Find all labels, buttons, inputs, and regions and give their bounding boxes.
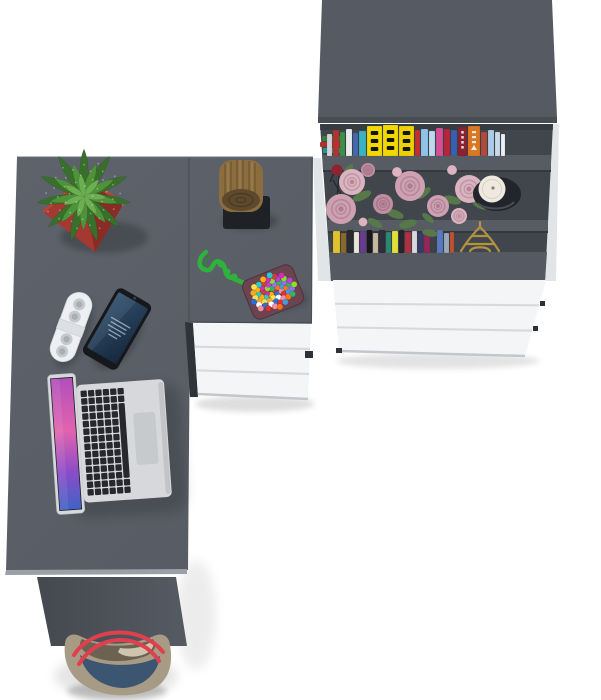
cactus-speckle	[55, 177, 57, 179]
cactus-speckle	[71, 220, 73, 222]
laptop-key	[96, 397, 103, 404]
rose-bud	[359, 218, 368, 227]
book-spine	[421, 129, 428, 156]
laptop-key	[83, 421, 90, 428]
cactus-speckle	[90, 170, 92, 172]
desk-corner-edge	[190, 322, 312, 323]
laptop-key	[108, 472, 115, 479]
laptop-key	[87, 489, 94, 496]
laptop	[47, 366, 188, 521]
laptop-key	[115, 457, 122, 464]
drawer-side-clip	[336, 348, 342, 353]
cactus-speckle	[69, 193, 71, 195]
laptop-key	[86, 466, 93, 473]
cactus-speckle	[82, 218, 84, 220]
cactus-speckle	[90, 213, 92, 215]
laptop-key	[97, 412, 104, 419]
book-spine	[379, 230, 385, 253]
book-title-mark	[472, 131, 476, 133]
laptop-key	[105, 427, 112, 434]
laptop-key	[96, 404, 103, 411]
laptop-key	[81, 406, 88, 413]
cactus-speckle	[89, 224, 91, 226]
cactus-speckle	[119, 193, 121, 195]
shelf-board-top	[322, 155, 551, 171]
book-spine	[501, 134, 505, 156]
rose-center	[338, 206, 343, 211]
laptop-key	[112, 411, 119, 418]
book-spine	[444, 129, 450, 156]
book-spine	[346, 129, 352, 156]
cactus-speckle	[122, 204, 124, 206]
book-title-mark	[387, 146, 395, 150]
book-title-mark	[461, 136, 464, 139]
book-title-mark	[371, 147, 379, 151]
book-title-mark	[472, 141, 476, 143]
laptop-key	[90, 420, 97, 427]
cactus-speckle	[65, 202, 67, 204]
rope-knot	[231, 274, 238, 281]
laptop-key	[113, 426, 120, 433]
cactus-speckle	[101, 201, 103, 203]
laptop-key	[102, 488, 109, 495]
book-spine	[333, 130, 339, 156]
cactus-speckle	[57, 196, 59, 198]
cactus-speckle	[92, 195, 94, 197]
laptop-key	[89, 405, 96, 412]
book-title-mark	[403, 139, 411, 143]
cactus-speckle	[80, 174, 82, 176]
laptop-key	[110, 396, 117, 403]
book-spine	[444, 233, 449, 253]
candle-wick	[491, 186, 494, 189]
laptop-key	[91, 435, 98, 442]
laptop-key	[80, 390, 87, 397]
bookcase-base-band	[329, 252, 547, 281]
laptop-key	[89, 413, 96, 420]
laptop-key	[109, 480, 116, 487]
log-cut-face	[222, 189, 260, 211]
laptop-key	[87, 481, 94, 488]
laptop-key	[99, 442, 106, 449]
book-title-mark	[472, 136, 476, 138]
laptop-key	[94, 481, 101, 488]
laptop-key	[82, 413, 89, 420]
cactus-speckle	[108, 219, 110, 221]
book-title-mark	[387, 130, 395, 134]
cactus-speckle	[113, 208, 115, 210]
cactus-speckle	[99, 227, 101, 229]
book-title-mark	[461, 146, 464, 149]
book-spine	[347, 230, 353, 253]
rose-center	[458, 215, 461, 218]
laptop-key	[93, 466, 100, 473]
laptop-key	[112, 419, 119, 426]
laptop-key	[103, 389, 110, 396]
book-spine	[333, 231, 340, 253]
rose-center	[407, 183, 412, 188]
book-spine	[415, 130, 420, 156]
cactus-speckle	[83, 164, 85, 166]
cactus-speckle	[75, 182, 77, 184]
laptop-key	[85, 459, 92, 466]
book-spine	[437, 230, 443, 253]
laptop-key	[104, 404, 111, 411]
laptop-key	[81, 398, 88, 405]
laptop-trackpad	[133, 412, 159, 465]
laptop-key	[95, 389, 102, 396]
underdesk-drawer-unit	[185, 322, 313, 399]
laptop-key	[98, 435, 105, 442]
bookcase	[313, 0, 559, 356]
book-spine	[495, 132, 500, 156]
book-spine	[360, 231, 366, 253]
drawer-side-clip	[540, 301, 545, 306]
laptop-key	[93, 458, 100, 465]
cactus-speckle	[114, 175, 116, 177]
book-spine	[367, 230, 372, 253]
book-title-mark	[371, 131, 379, 135]
book-spine	[359, 131, 366, 156]
laptop-key	[104, 412, 111, 419]
cactus-speckle	[102, 171, 104, 173]
book-spine	[392, 231, 398, 253]
cactus-speckle	[50, 202, 52, 204]
book-spine	[418, 233, 423, 253]
laptop-key	[118, 395, 125, 402]
cactus-speckle	[58, 218, 60, 220]
cactus-speckle	[65, 177, 67, 179]
cactus-speckle	[98, 218, 100, 220]
laptop-key	[109, 487, 116, 494]
laptop-key	[105, 419, 112, 426]
laptop-key	[97, 420, 104, 427]
book-spine	[481, 132, 487, 156]
laptop-key	[100, 465, 107, 472]
book-spine	[488, 130, 494, 156]
cactus-speckle	[84, 185, 86, 187]
book-spine	[340, 132, 345, 156]
cactus-speckle	[91, 204, 93, 206]
book-spine	[451, 130, 457, 156]
laptop-key	[100, 458, 107, 465]
cactus-speckle	[97, 163, 99, 165]
rose-bud	[447, 165, 457, 175]
laptop-key	[92, 451, 99, 458]
rose-center	[436, 204, 440, 208]
laptop-key	[101, 473, 108, 480]
desk-seam	[312, 158, 313, 322]
drawer-side-clip	[305, 351, 313, 358]
cactus-speckle	[45, 192, 47, 194]
cactus-speckle	[79, 209, 81, 211]
laptop-key	[86, 474, 93, 481]
book-spine	[450, 232, 454, 253]
book-title-mark	[461, 131, 464, 134]
cactus-speckle	[106, 191, 108, 193]
rose-center	[466, 186, 471, 191]
rose-bud	[392, 167, 402, 177]
book-spine	[405, 232, 411, 253]
book-title-mark	[371, 139, 379, 143]
drawer-side-clip	[533, 326, 538, 331]
book-title-mark	[461, 141, 464, 144]
drawer-front	[193, 323, 311, 399]
laptop-key	[108, 465, 115, 472]
bookcase-top-panel	[318, 0, 557, 117]
laptop-key	[83, 428, 90, 435]
laptop-key	[117, 388, 124, 395]
book-spine	[399, 230, 404, 253]
laptop-key	[90, 428, 97, 435]
laptop-key	[107, 449, 114, 456]
rope-knot	[224, 269, 231, 276]
cactus-speckle	[112, 198, 114, 200]
rose-center	[367, 169, 370, 172]
cactus-speckle	[64, 186, 66, 188]
laptop-key	[106, 434, 113, 441]
cactus-speckle	[62, 167, 64, 169]
book-spine	[353, 133, 358, 156]
laptop-key	[106, 442, 113, 449]
cactus-speckle	[76, 227, 78, 229]
book-title-mark	[387, 138, 395, 142]
rope-knot	[218, 261, 225, 268]
cactus-speckle	[75, 201, 77, 203]
laptop-key	[114, 449, 121, 456]
laptop-key	[124, 479, 131, 486]
book-spine	[436, 128, 443, 156]
rose-center	[381, 202, 385, 206]
laptop-key	[117, 487, 124, 494]
book-title-mark	[403, 131, 411, 135]
book-spine	[412, 231, 417, 253]
laptop-key	[84, 443, 91, 450]
bookcase-drawer-unit	[333, 280, 546, 356]
book-title-mark	[403, 147, 411, 151]
laptop-key	[92, 443, 99, 450]
cactus-speckle	[103, 209, 105, 211]
book-spine	[386, 232, 391, 253]
bookcase-top-panel-edge	[318, 117, 557, 123]
cactus-speckle	[72, 169, 74, 171]
laptop-key	[84, 436, 91, 443]
cactus-speckle	[59, 209, 61, 211]
laptop-key	[124, 486, 131, 493]
book-spine	[429, 131, 435, 156]
red-rose	[332, 165, 343, 176]
desk-front-edge	[5, 569, 187, 575]
laptop-key	[88, 390, 95, 397]
cactus-speckle	[97, 188, 99, 190]
laptop-key	[98, 427, 105, 434]
book-spine	[341, 233, 346, 253]
cactus-speckle	[102, 179, 104, 181]
laptop-key	[111, 403, 118, 410]
laptop-key	[102, 480, 109, 487]
rose-center	[350, 180, 355, 185]
laptop-key	[94, 473, 101, 480]
product-render	[0, 0, 601, 700]
laptop-key	[95, 488, 102, 495]
laptop-key	[88, 397, 95, 404]
cactus-speckle	[69, 212, 71, 214]
scene-svg	[0, 0, 601, 700]
laptop-key	[116, 479, 123, 486]
cactus-speckle	[53, 187, 55, 189]
laptop-key	[103, 396, 110, 403]
cactus-speckle	[47, 211, 49, 213]
drawer-front	[333, 280, 546, 356]
laptop-key	[114, 441, 121, 448]
laptop-key	[116, 472, 123, 479]
laptop-key	[110, 388, 117, 395]
laptop-key	[99, 450, 106, 457]
cactus-speckle	[92, 179, 94, 181]
book-spine	[354, 232, 359, 253]
laptop-key	[85, 451, 92, 458]
laptop-key	[107, 457, 114, 464]
laptop-key	[113, 434, 120, 441]
cactus-speckle	[112, 184, 114, 186]
book-spine	[327, 134, 332, 156]
book-spine	[373, 233, 378, 253]
laptop-key	[115, 464, 122, 471]
